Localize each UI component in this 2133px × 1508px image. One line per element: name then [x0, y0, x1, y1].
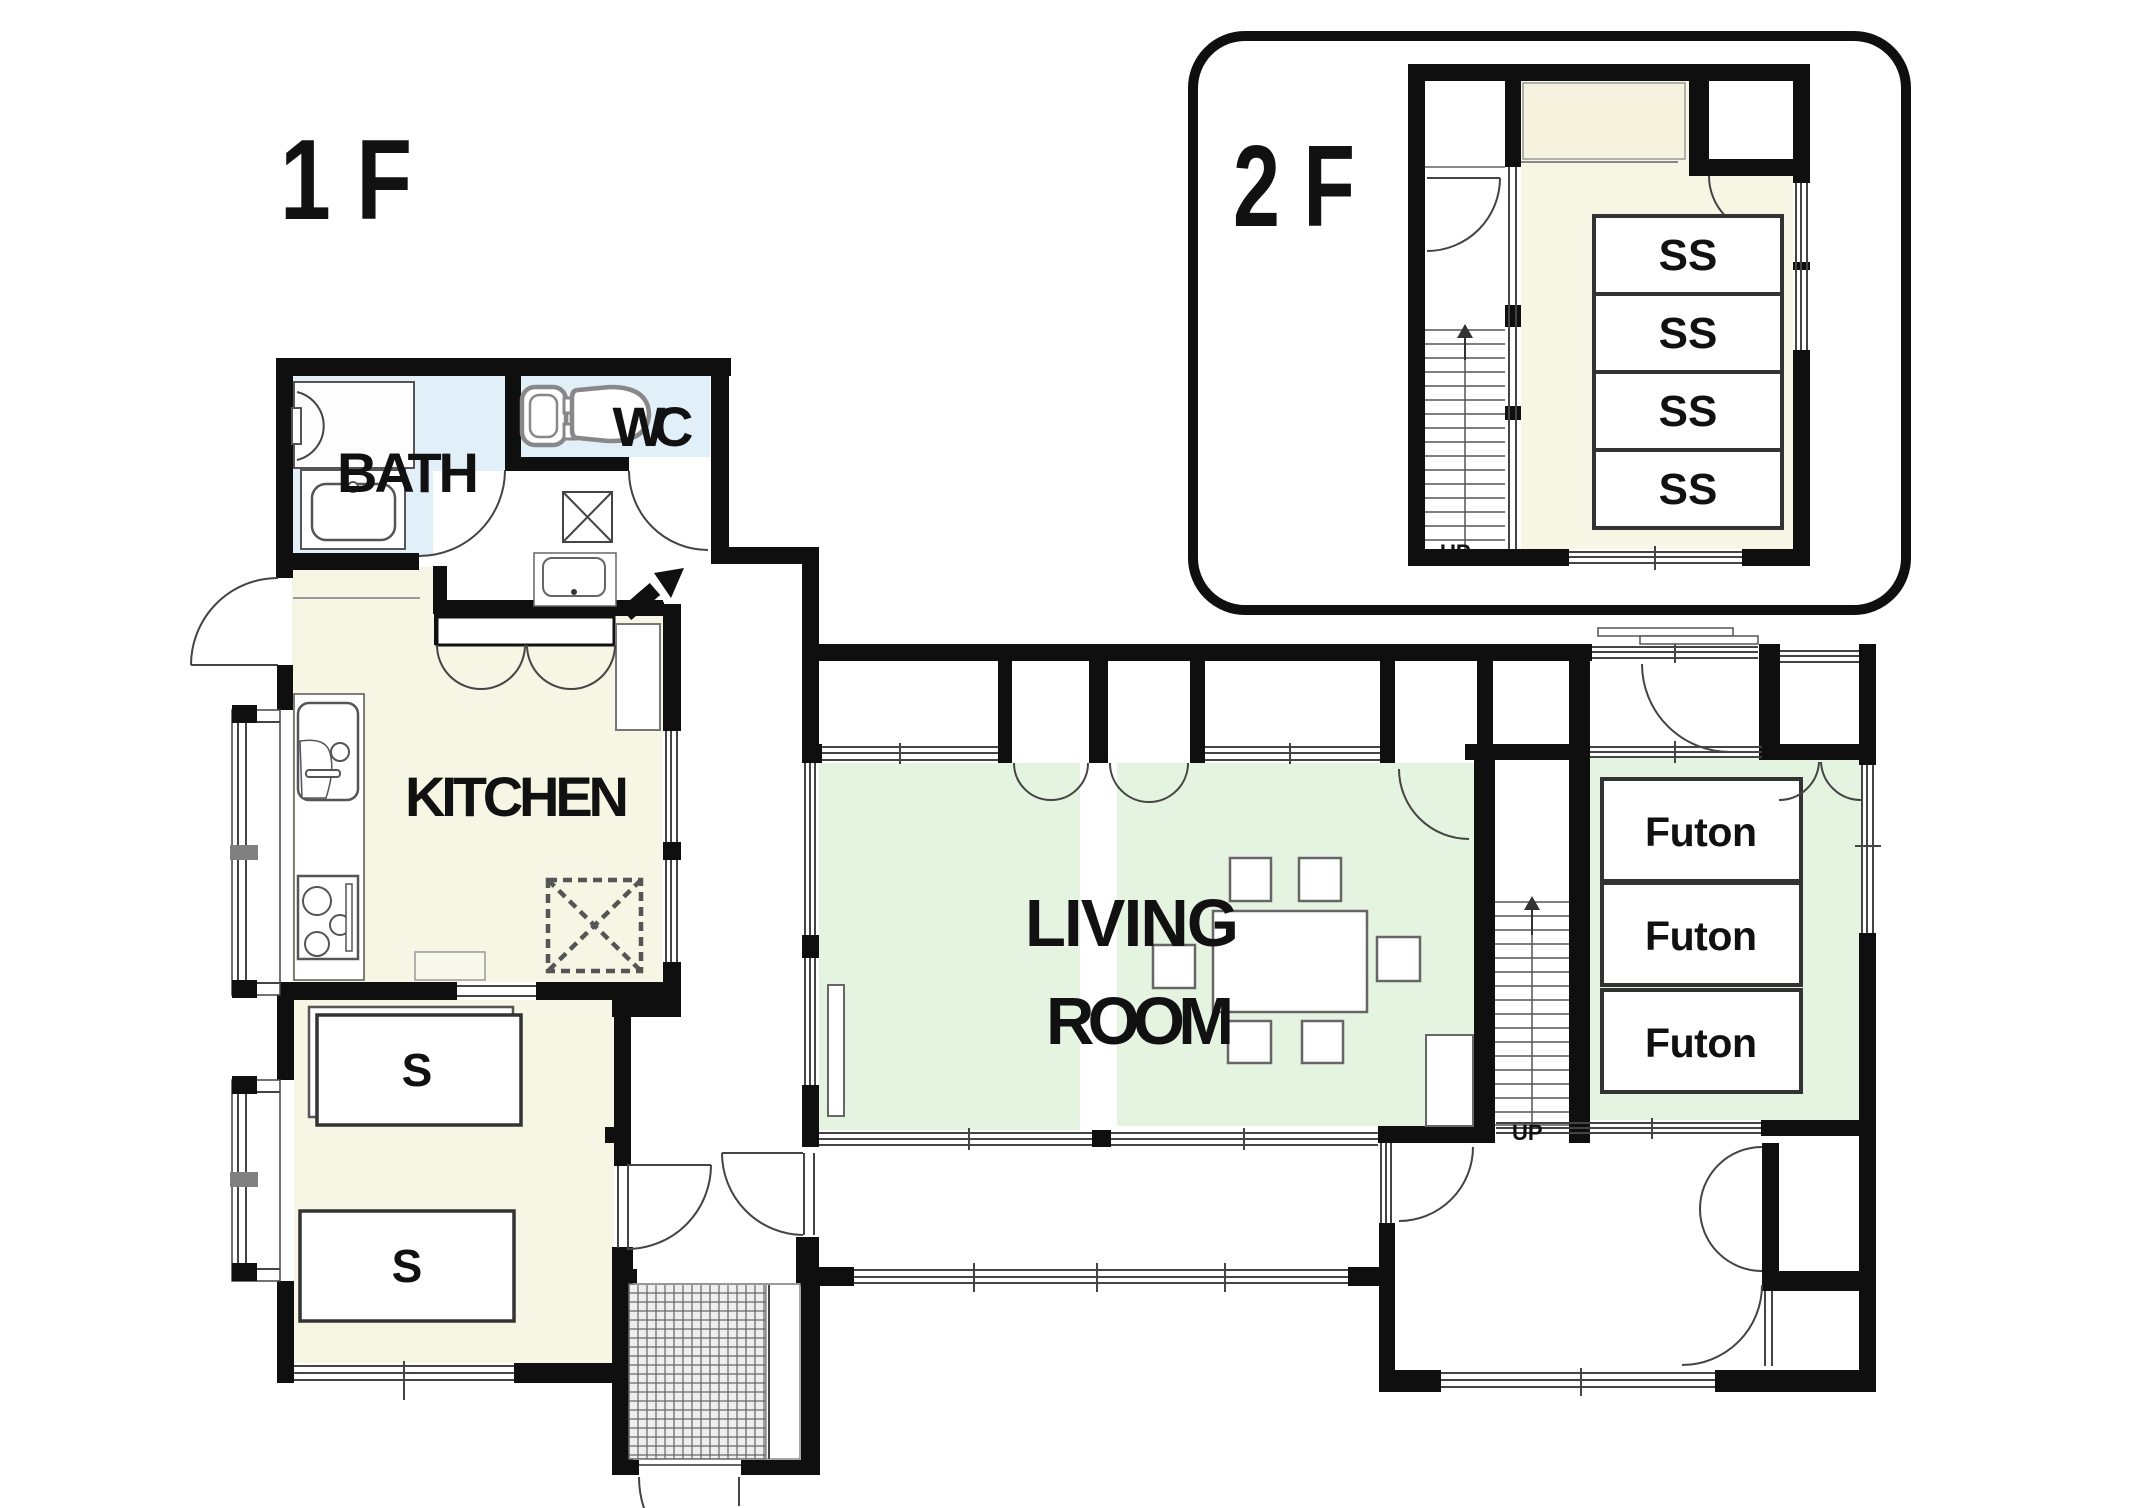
- svg-text:Futon: Futon: [1645, 809, 1757, 855]
- svg-text:UP: UP: [1512, 1120, 1543, 1145]
- svg-text:WC: WC: [613, 395, 694, 458]
- svg-text:BATH: BATH: [337, 441, 479, 504]
- svg-text:S: S: [402, 1044, 433, 1096]
- svg-text:1 F: 1 F: [280, 117, 412, 244]
- svg-text:SS: SS: [1659, 309, 1718, 358]
- svg-text:Futon: Futon: [1645, 913, 1757, 959]
- svg-text:SS: SS: [1659, 231, 1718, 280]
- svg-text:SS: SS: [1659, 465, 1718, 514]
- svg-text:KITCHEN: KITCHEN: [405, 765, 629, 828]
- svg-text:2 F: 2 F: [1233, 121, 1355, 251]
- svg-text:Futon: Futon: [1645, 1020, 1757, 1066]
- svg-text:UP: UP: [1440, 540, 1471, 565]
- svg-text:LIVING: LIVING: [1025, 886, 1239, 961]
- svg-text:SS: SS: [1659, 387, 1718, 436]
- svg-text:ROOM: ROOM: [1046, 984, 1234, 1059]
- svg-text:S: S: [392, 1240, 423, 1292]
